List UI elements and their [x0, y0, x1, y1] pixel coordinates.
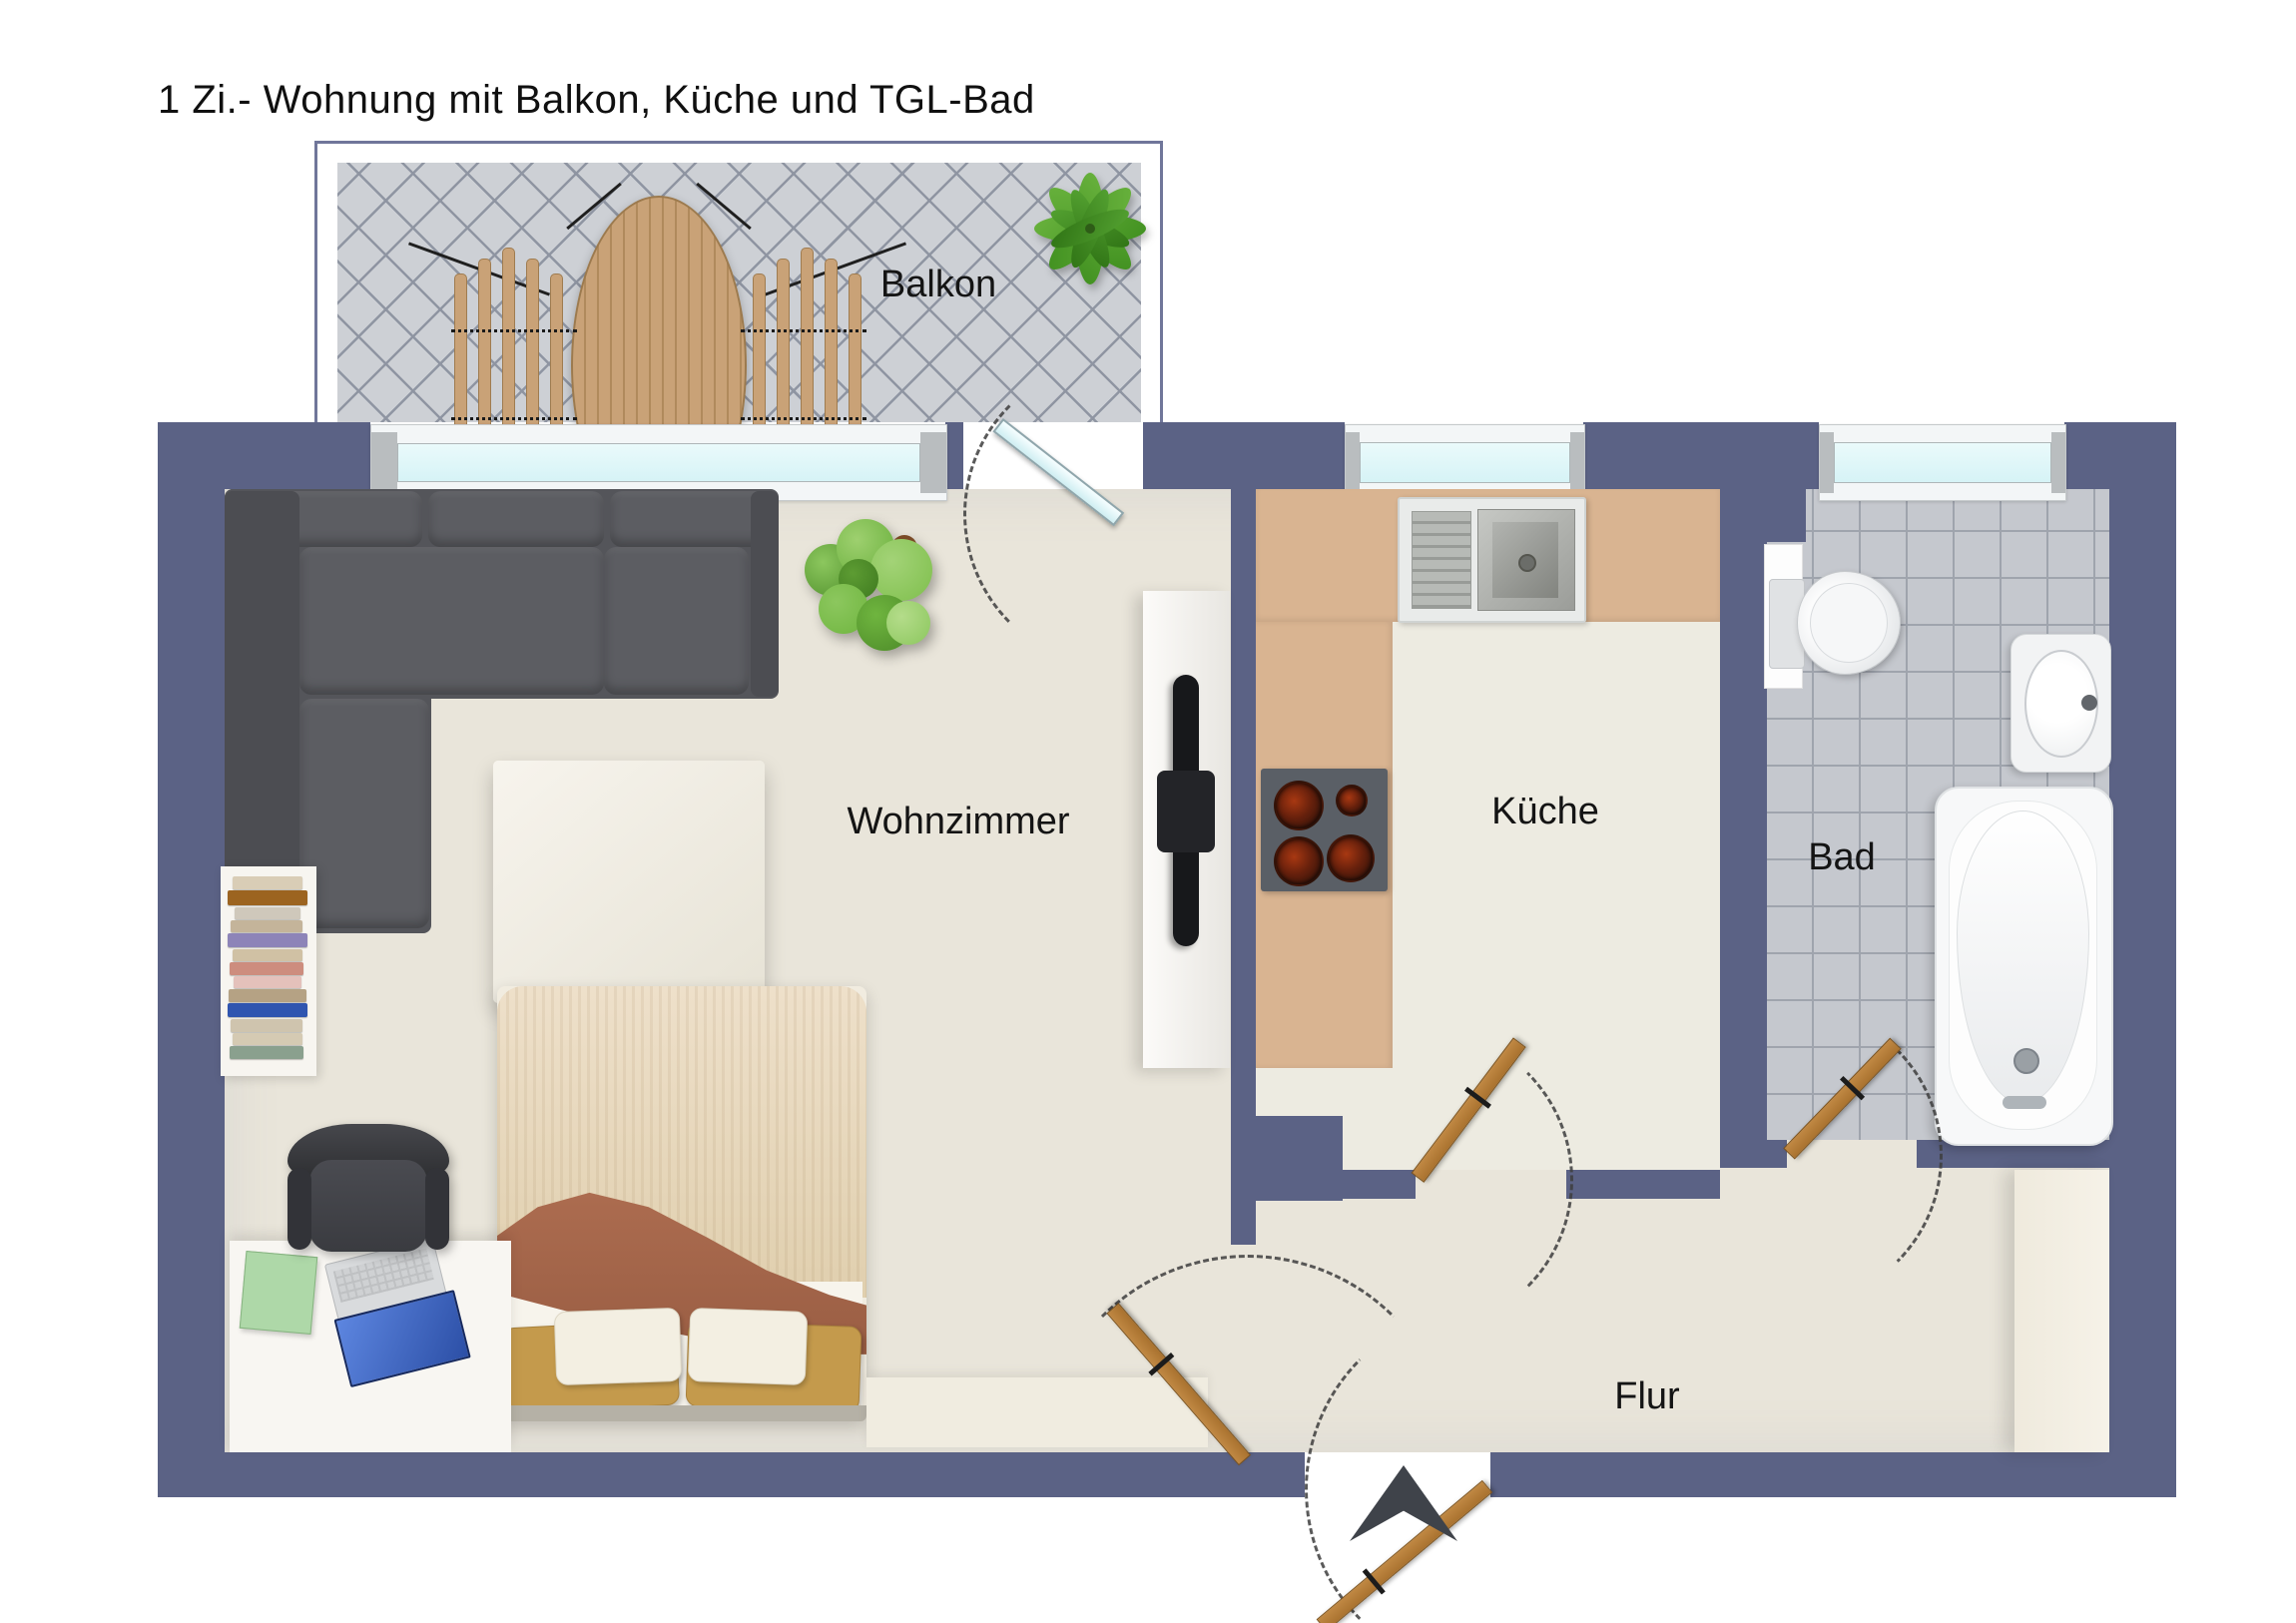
tub-drain-icon — [2013, 1048, 2039, 1074]
coffee-table — [493, 761, 765, 1003]
burner-icon — [1336, 785, 1368, 816]
hallway-label: Flur — [1597, 1375, 1697, 1418]
burner-icon — [1327, 834, 1375, 882]
office-chair — [287, 1124, 451, 1254]
sink-drain-icon — [1518, 554, 1536, 572]
floor-plan: 1 Zi.- Wohnung mit Balkon, Küche und TGL… — [0, 0, 2296, 1623]
living-room-plant-icon — [799, 517, 938, 645]
wall-left — [158, 422, 225, 1497]
bath-sink — [2010, 634, 2111, 773]
faucet-icon — [2081, 695, 2097, 711]
burner-icon — [1274, 781, 1324, 830]
sink-drainboard — [1412, 511, 1471, 609]
burner-icon — [1274, 836, 1324, 886]
bathtub — [1935, 787, 2113, 1146]
tub-overflow-icon — [2003, 1096, 2046, 1109]
desk-folder — [240, 1251, 318, 1335]
hall-cabinet — [2014, 1170, 2109, 1452]
bed — [497, 986, 866, 1421]
bookshelf — [221, 866, 316, 1076]
living-room-label: Wohnzimmer — [834, 801, 1083, 843]
wall-top — [945, 422, 963, 489]
wall-top — [1583, 422, 1819, 489]
bed-pillow-white — [688, 1308, 809, 1385]
page-title: 1 Zi.- Wohnung mit Balkon, Küche und TGL… — [158, 78, 1035, 123]
bed-base — [497, 1405, 866, 1421]
bathroom-window — [1819, 424, 2066, 501]
sink-basin — [1477, 509, 1575, 611]
tv-mount — [1157, 771, 1215, 852]
bathroom-label: Bad — [1792, 836, 1892, 879]
wall-right — [2109, 422, 2176, 1497]
balcony-plant-icon — [1028, 167, 1152, 290]
balcony-label: Balkon — [839, 264, 1038, 306]
wall-kitchen-bath-block — [1720, 489, 1806, 542]
kitchen-sink — [1398, 497, 1586, 623]
kitchen-label: Küche — [1445, 791, 1645, 833]
bed-pillow-white — [554, 1308, 683, 1385]
